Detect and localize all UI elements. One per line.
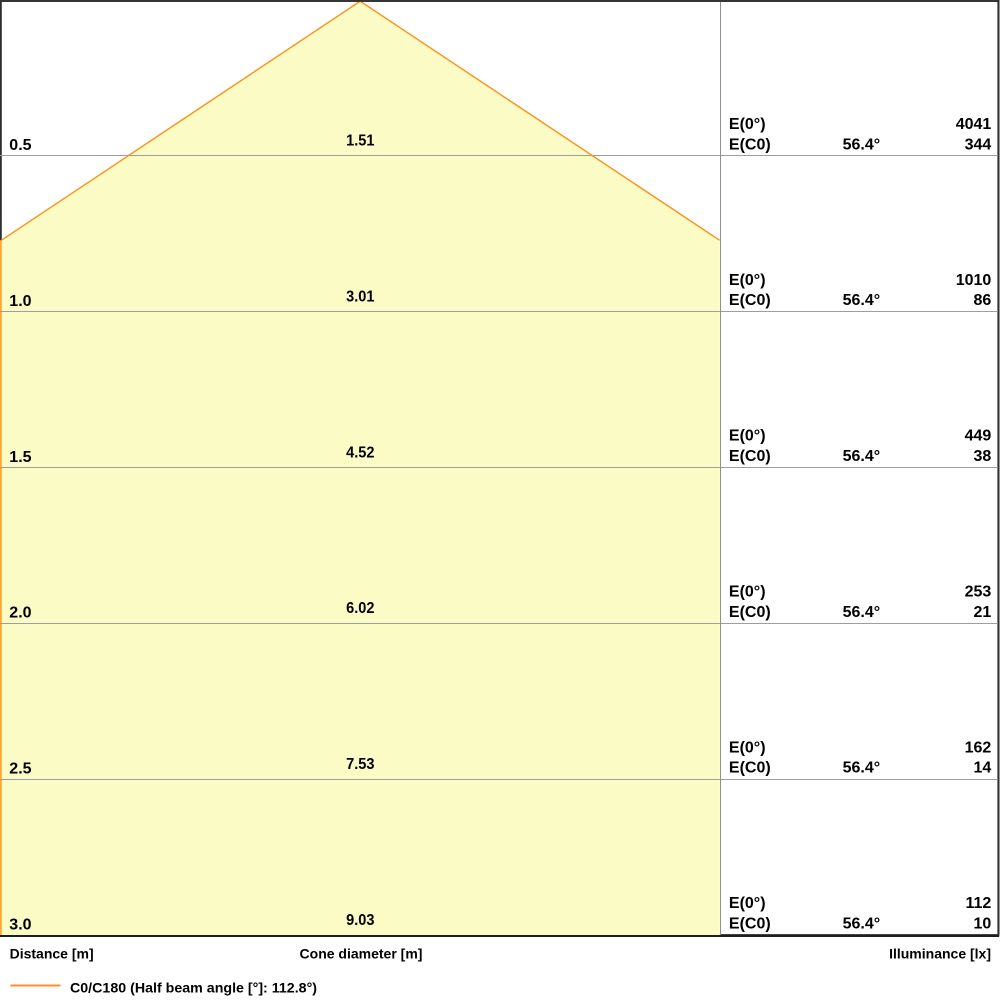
svg-text:4.52: 4.52 [346, 444, 374, 461]
svg-text:Distance [m]: Distance [m] [10, 945, 94, 961]
svg-text:14: 14 [974, 760, 992, 777]
svg-text:56.4°: 56.4° [843, 136, 881, 153]
svg-text:E(C0): E(C0) [729, 136, 771, 153]
svg-text:2.0: 2.0 [9, 605, 31, 622]
svg-text:E(C0): E(C0) [729, 604, 771, 621]
svg-text:56.4°: 56.4° [843, 448, 881, 465]
svg-text:Illuminance [lx]: Illuminance [lx] [889, 945, 991, 961]
svg-text:E(0°): E(0°) [729, 895, 766, 912]
svg-text:1.51: 1.51 [346, 133, 374, 150]
svg-text:E(C0): E(C0) [729, 448, 771, 465]
svg-text:162: 162 [965, 739, 992, 756]
svg-text:E(0°): E(0°) [729, 116, 766, 133]
svg-text:9.03: 9.03 [346, 912, 374, 929]
svg-text:56.4°: 56.4° [843, 916, 881, 933]
svg-text:38: 38 [974, 448, 992, 465]
svg-text:Cone diameter [m]: Cone diameter [m] [300, 945, 423, 961]
svg-text:E(0°): E(0°) [729, 428, 766, 445]
svg-text:1.0: 1.0 [9, 293, 31, 310]
svg-text:0.5: 0.5 [9, 137, 31, 154]
svg-text:4041: 4041 [956, 116, 992, 133]
svg-text:1.5: 1.5 [9, 449, 31, 466]
svg-text:449: 449 [965, 428, 992, 445]
svg-text:E(0°): E(0°) [729, 584, 766, 601]
svg-text:1010: 1010 [956, 272, 992, 289]
svg-text:253: 253 [965, 584, 992, 601]
svg-text:344: 344 [965, 136, 992, 153]
svg-text:3.01: 3.01 [346, 289, 374, 306]
svg-text:E(C0): E(C0) [729, 292, 771, 309]
svg-text:E(C0): E(C0) [729, 760, 771, 777]
svg-text:3.0: 3.0 [9, 916, 31, 933]
svg-text:56.4°: 56.4° [843, 292, 881, 309]
svg-text:E(C0): E(C0) [729, 916, 771, 933]
svg-text:C0/C180 (Half beam angle [°]:: C0/C180 (Half beam angle [°]: 112.8°) [70, 980, 317, 996]
svg-text:86: 86 [974, 292, 992, 309]
svg-text:10: 10 [974, 916, 992, 933]
svg-text:56.4°: 56.4° [843, 760, 881, 777]
svg-text:21: 21 [974, 604, 992, 621]
svg-text:2.5: 2.5 [9, 761, 31, 778]
svg-text:E(0°): E(0°) [729, 272, 766, 289]
svg-text:E(0°): E(0°) [729, 739, 766, 756]
svg-text:6.02: 6.02 [346, 600, 374, 617]
svg-text:112: 112 [965, 895, 991, 912]
svg-text:56.4°: 56.4° [843, 604, 881, 621]
svg-text:7.53: 7.53 [346, 756, 374, 773]
